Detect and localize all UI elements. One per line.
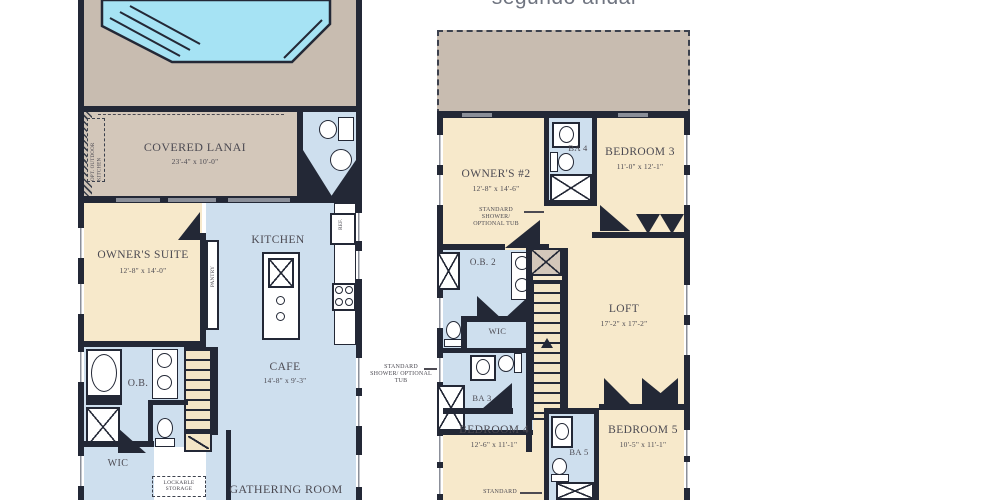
toilet-icon — [514, 353, 522, 373]
pool-icon — [100, 0, 332, 66]
shower-icon — [556, 482, 594, 500]
loft-dims: 17'-2" x 17'-2" — [578, 320, 670, 329]
knob-icon — [276, 296, 285, 305]
wic-label: WIC — [88, 458, 148, 470]
toilet-icon — [319, 120, 337, 139]
burner-icon — [345, 298, 353, 306]
toilet-icon — [550, 152, 558, 172]
owners-suite-dims: 12'-8" x 14'-0" — [84, 267, 202, 276]
sink-icon — [555, 423, 569, 440]
sink-icon — [157, 375, 172, 390]
owners-suite-label: OWNER'S SUITE — [84, 249, 202, 262]
window-icon — [437, 436, 443, 462]
wall — [148, 400, 188, 405]
wic-room — [84, 447, 154, 500]
cafe-dims: 14'-8" x 9'-3" — [240, 377, 330, 386]
sink-icon — [330, 149, 352, 171]
window-icon — [356, 213, 362, 241]
window-icon — [78, 352, 84, 382]
floor2-title: segundo andar — [458, 0, 672, 10]
window-icon — [684, 285, 690, 315]
covered-lanai-label: COVERED LANAI — [115, 141, 275, 155]
wall — [212, 347, 218, 435]
bedroom4-label: BEDROOM 4 — [446, 424, 542, 437]
refrigerator-icon: REF. — [330, 213, 356, 245]
callout-leader-line — [524, 211, 544, 213]
callout-leader-line — [424, 368, 438, 370]
window-icon — [437, 175, 443, 205]
stair-section-glyph — [184, 432, 212, 452]
refrigerator-label: REF. — [338, 219, 344, 230]
toilet-icon — [338, 117, 354, 141]
sink-icon — [559, 126, 574, 143]
lockable-storage-label: LOCKABLE STORAGE — [155, 480, 203, 493]
sliding-door-icon — [228, 198, 290, 202]
stairs — [184, 347, 212, 433]
owners2-label: OWNER'S #2 — [448, 168, 544, 181]
pantry-label: PANTRY — [210, 266, 216, 287]
window-icon — [356, 251, 362, 279]
window-icon — [684, 175, 690, 205]
covered-lanai-dims: 23'-4" x 10'-0" — [115, 158, 275, 167]
toilet-icon — [444, 339, 462, 347]
burner-icon — [335, 286, 343, 294]
loft-label: LOFT — [578, 303, 670, 316]
shower-callout-bottom: STANDARD — [478, 489, 522, 496]
gathering-room-label: GATHERING ROOM — [218, 483, 354, 497]
toilet-icon — [551, 474, 569, 482]
wall — [592, 232, 690, 238]
sliding-door-icon — [168, 198, 216, 202]
knob-icon — [276, 312, 285, 321]
wall — [544, 118, 549, 206]
bedroom4-dims: 12'-6" x 11'-1" — [446, 441, 542, 450]
window-icon — [78, 456, 84, 486]
sliding-door-icon — [116, 198, 160, 202]
window-icon — [437, 468, 443, 494]
bedroom3-dims: 11'-0" x 12'-1" — [594, 163, 686, 172]
stair-slope-icon — [188, 436, 209, 449]
opt-outdoor-kitchen-box: OPT. OUTDOOR KITCHEN — [87, 118, 105, 182]
window-icon — [78, 284, 84, 314]
window-icon — [437, 298, 443, 328]
window-icon — [356, 455, 362, 487]
toilet-icon — [552, 458, 567, 475]
bedroom3-label: BEDROOM 3 — [594, 146, 686, 159]
roof-below-area — [437, 30, 690, 115]
bedroom5-label: BEDROOM 5 — [598, 424, 688, 437]
toilet-icon — [157, 418, 173, 438]
tub-basin-icon — [91, 354, 117, 392]
opt-outdoor-kitchen-label: OPT. OUTDOOR KITCHEN — [91, 121, 104, 181]
lockable-storage-box: LOCKABLE STORAGE — [152, 476, 206, 497]
shower-callout-left: STANDARD SHOWER/ OPTIONAL TUB — [370, 364, 432, 385]
wic2-label: WIC — [470, 327, 525, 337]
wall — [599, 404, 690, 410]
stairs — [532, 280, 562, 420]
tub-icon — [550, 174, 592, 202]
wall — [592, 118, 597, 206]
burner-icon — [335, 298, 343, 306]
window-icon — [684, 325, 690, 355]
window-icon — [437, 135, 443, 165]
tub-seat — [86, 397, 122, 405]
sink-icon — [157, 353, 172, 368]
window-icon — [684, 430, 690, 456]
toilet-icon — [446, 321, 461, 339]
toilet-icon — [558, 153, 574, 171]
kitchen-label: KITCHEN — [226, 234, 330, 247]
callout-leader-line — [520, 492, 542, 494]
owners2-dims: 12'-8" x 14'-6" — [448, 185, 544, 194]
lanai-dashed-line — [98, 114, 284, 115]
window-icon — [684, 462, 690, 488]
ba5-label: BA 5 — [565, 448, 593, 458]
toilet-icon — [498, 355, 514, 372]
ob2-label: O.B. 2 — [458, 257, 508, 267]
linen-icon — [437, 252, 460, 290]
cafe-label: CAFE — [240, 361, 330, 374]
bedroom5-dims: 10'-5" x 11'-1" — [598, 441, 688, 450]
window-icon — [684, 135, 690, 165]
toilet-icon — [155, 438, 175, 447]
wall — [544, 200, 597, 206]
window-icon — [462, 113, 492, 117]
window-icon — [356, 358, 362, 388]
ba4-label: BA 4 — [562, 144, 594, 154]
window-icon — [437, 358, 443, 382]
pantry-shelf: PANTRY — [206, 240, 219, 330]
window-icon — [78, 228, 84, 258]
sink-icon — [476, 359, 490, 375]
covered-lanai-room — [84, 112, 302, 198]
floorplan-canvas: OPT. OUTDOOR KITCHEN COVERED LANAI 23'-4… — [0, 0, 1000, 500]
island-sink-icon — [268, 258, 294, 288]
laundry-icon — [530, 248, 562, 276]
wall — [594, 408, 599, 500]
shower-callout-top: STANDARD SHOWER/ OPTIONAL TUB — [468, 207, 524, 228]
burner-icon — [345, 286, 353, 294]
window-icon — [618, 113, 648, 117]
window-icon — [356, 396, 362, 426]
